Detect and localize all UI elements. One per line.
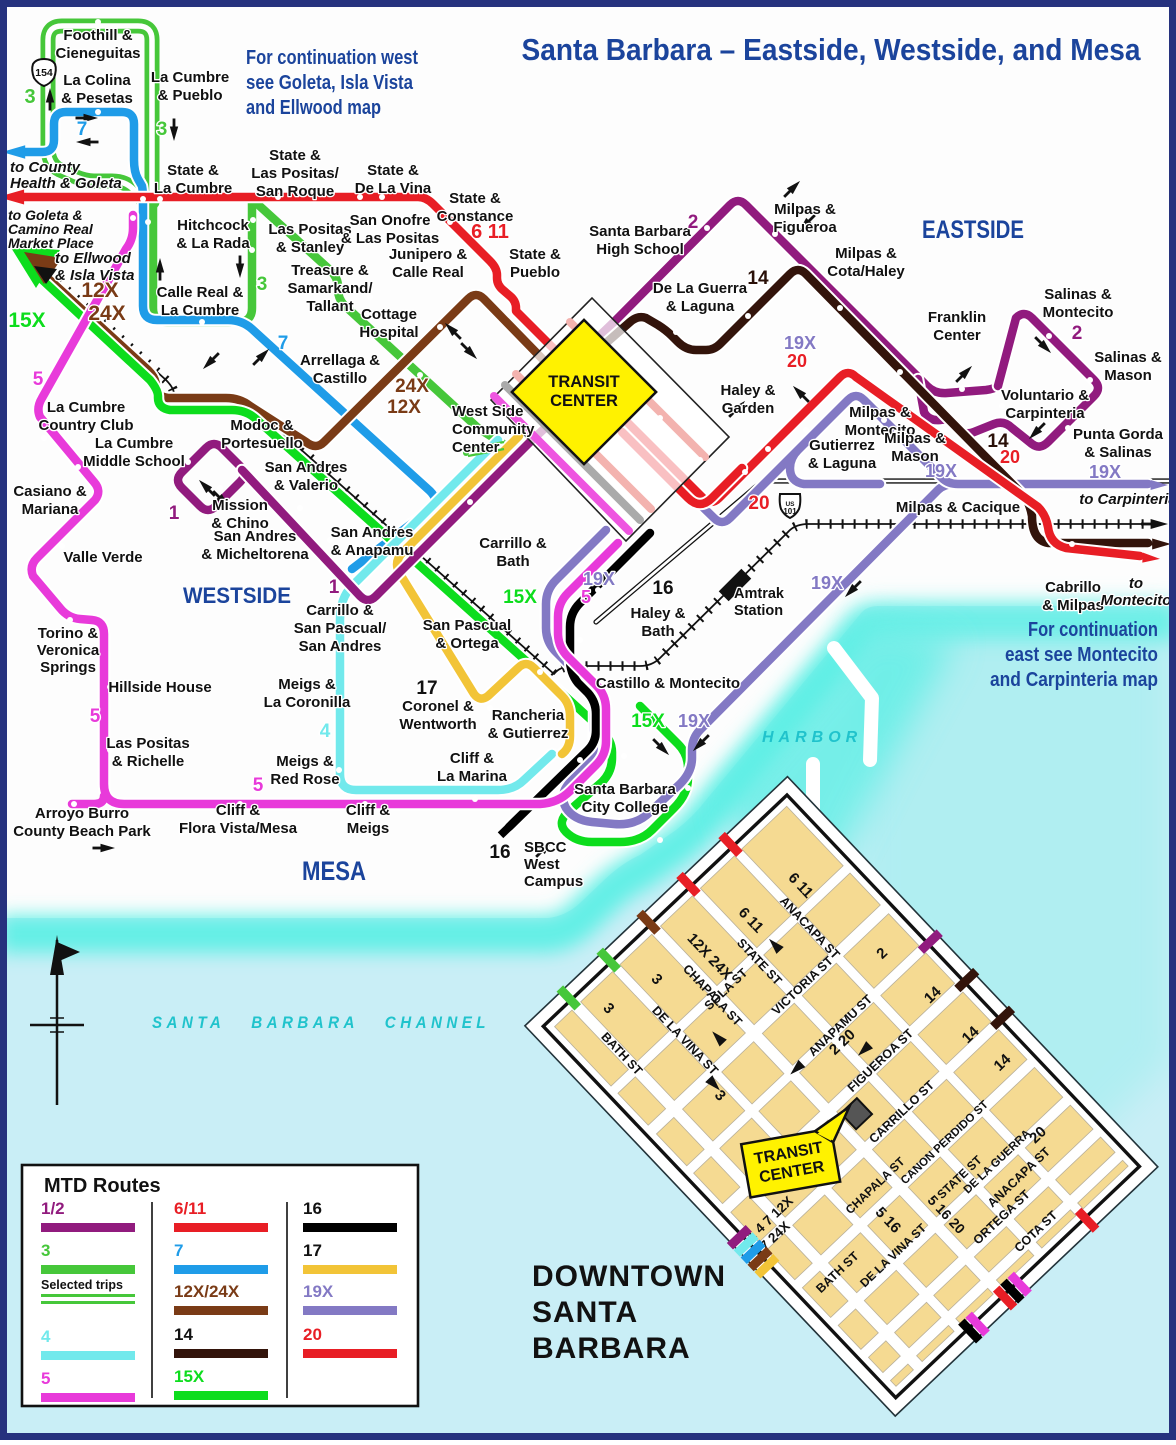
svg-text:Milpas & Cacique: Milpas & Cacique (896, 499, 1020, 516)
svg-text:La Coronilla: La Coronilla (264, 694, 351, 711)
svg-text:Milpas &: Milpas & (774, 201, 836, 218)
svg-text:and Ellwood map: and Ellwood map (246, 97, 381, 119)
svg-text:Foothill &: Foothill & (63, 27, 132, 44)
svg-text:Cliff &: Cliff & (450, 750, 494, 767)
svg-text:Hillside House: Hillside House (108, 679, 211, 696)
svg-text:Community: Community (452, 421, 535, 438)
svg-text:Selected trips: Selected trips (41, 1278, 123, 1292)
svg-text:De La Guerra: De La Guerra (653, 280, 748, 297)
svg-text:SANTA BARBARA CHANNEL: SANTA BARBARA CHANNEL (152, 1013, 490, 1032)
svg-text:to County: to County (10, 159, 81, 176)
svg-text:15X: 15X (174, 1367, 205, 1386)
svg-text:Flora Vista/Mesa: Flora Vista/Mesa (179, 820, 298, 837)
svg-text:La Cumbre: La Cumbre (47, 399, 125, 416)
svg-text:3: 3 (157, 119, 168, 140)
svg-text:La Cumbre: La Cumbre (151, 69, 229, 86)
svg-text:BARBARA: BARBARA (532, 1332, 691, 1365)
svg-text:San Pascual/: San Pascual/ (294, 620, 387, 637)
svg-text:Valle Verde: Valle Verde (63, 549, 142, 566)
svg-text:Montecito: Montecito (1101, 592, 1172, 609)
svg-text:to Carpinteria: to Carpinteria (1079, 491, 1176, 508)
svg-text:SANTA: SANTA (532, 1296, 638, 1329)
svg-text:2: 2 (688, 212, 699, 233)
svg-text:Santa Barbara – Eastside, West: Santa Barbara – Eastside, Westside, and … (522, 32, 1142, 67)
svg-text:Mason: Mason (1104, 367, 1152, 384)
svg-text:MESA: MESA (302, 856, 366, 886)
svg-text:San Roque: San Roque (256, 183, 334, 200)
svg-text:Junipero &: Junipero & (389, 246, 468, 263)
svg-text:24X: 24X (395, 376, 429, 397)
svg-text:San Andres: San Andres (331, 524, 414, 541)
svg-text:Tallant: Tallant (306, 298, 353, 315)
svg-text:Castillo: Castillo (313, 370, 367, 387)
svg-text:Hitchcock: Hitchcock (177, 217, 249, 234)
svg-text:5: 5 (90, 706, 101, 727)
svg-text:Pueblo: Pueblo (510, 264, 560, 281)
svg-text:15X: 15X (503, 587, 537, 608)
svg-text:Rancheria: Rancheria (492, 707, 565, 724)
svg-text:Castillo & Montecito: Castillo & Montecito (596, 675, 740, 692)
svg-text:DOWNTOWN: DOWNTOWN (532, 1260, 726, 1293)
svg-text:12X: 12X (387, 397, 421, 418)
svg-text:Center: Center (452, 439, 500, 456)
svg-text:Punta Gorda: Punta Gorda (1073, 426, 1164, 443)
svg-text:Milpas &: Milpas & (884, 430, 946, 447)
svg-text:7: 7 (77, 119, 88, 140)
svg-text:Red Rose: Red Rose (270, 771, 339, 788)
svg-text:20: 20 (1000, 447, 1020, 467)
svg-text:San Andres: San Andres (265, 459, 348, 476)
svg-text:19X: 19X (303, 1282, 334, 1301)
svg-text:Wentworth: Wentworth (399, 716, 476, 733)
svg-text:Santa Barbara: Santa Barbara (574, 781, 676, 798)
svg-text:Las Positas/: Las Positas/ (251, 165, 339, 182)
svg-text:San Onofre: San Onofre (350, 212, 431, 229)
svg-text:& Stanley: & Stanley (276, 239, 345, 256)
svg-text:1: 1 (329, 577, 340, 598)
svg-text:Haley &: Haley & (630, 605, 685, 622)
svg-text:Amtrak: Amtrak (734, 586, 785, 602)
svg-text:Coronel &: Coronel & (402, 698, 474, 715)
svg-text:Mission: Mission (212, 497, 268, 514)
svg-text:Modoc &: Modoc & (230, 417, 293, 434)
svg-text:De La Vina: De La Vina (355, 180, 432, 197)
svg-text:19X: 19X (678, 711, 710, 731)
svg-text:17: 17 (303, 1241, 322, 1260)
svg-text:TRANSIT: TRANSIT (548, 373, 620, 391)
svg-text:Cliff &: Cliff & (346, 802, 390, 819)
svg-text:Calle Real: Calle Real (392, 264, 464, 281)
svg-text:State &: State & (269, 147, 321, 164)
svg-text:12X/24X: 12X/24X (174, 1282, 240, 1301)
svg-text:MTD Routes: MTD Routes (44, 1175, 161, 1197)
svg-text:Carpinteria: Carpinteria (1005, 405, 1085, 422)
svg-text:San Andres: San Andres (214, 528, 297, 545)
svg-text:20: 20 (748, 493, 769, 514)
svg-text:& Valerio: & Valerio (274, 477, 338, 494)
svg-text:Las Positas: Las Positas (106, 735, 189, 752)
svg-text:3: 3 (24, 86, 35, 108)
svg-text:La Colina: La Colina (63, 72, 131, 89)
svg-text:19X: 19X (784, 333, 816, 353)
svg-text:Campus: Campus (524, 873, 583, 890)
svg-text:County Beach Park: County Beach Park (13, 823, 151, 840)
svg-text:5: 5 (33, 369, 44, 390)
svg-text:Las Positas: Las Positas (268, 221, 351, 238)
svg-text:15X: 15X (631, 711, 665, 732)
svg-text:Haley &: Haley & (720, 382, 775, 399)
svg-text:San Pascual: San Pascual (423, 617, 511, 634)
svg-text:Milpas &: Milpas & (835, 245, 897, 262)
svg-text:20: 20 (787, 351, 807, 371)
svg-text:Country Club: Country Club (39, 417, 134, 434)
svg-text:and Carpinteria map: and Carpinteria map (990, 669, 1158, 691)
svg-text:3: 3 (41, 1241, 50, 1260)
svg-text:Meigs: Meigs (347, 820, 390, 837)
svg-text:20: 20 (303, 1325, 322, 1344)
svg-text:15X: 15X (8, 309, 45, 332)
svg-text:Bath: Bath (641, 623, 674, 640)
svg-text:101: 101 (783, 507, 797, 516)
svg-text:Franklin: Franklin (928, 309, 986, 326)
svg-text:Santa Barbara: Santa Barbara (589, 223, 691, 240)
svg-text:HARBOR: HARBOR (762, 729, 862, 746)
svg-text:Meigs &: Meigs & (276, 753, 334, 770)
svg-text:19X: 19X (1089, 462, 1121, 482)
svg-text:La Marina: La Marina (437, 768, 508, 785)
svg-text:State &: State & (449, 190, 501, 207)
svg-text:Milpas &: Milpas & (849, 404, 911, 421)
svg-text:San Andres: San Andres (299, 638, 382, 655)
svg-text:5: 5 (581, 587, 591, 607)
svg-text:14: 14 (174, 1325, 193, 1344)
svg-text:6/11: 6/11 (174, 1199, 206, 1218)
svg-text:Bath: Bath (496, 553, 529, 570)
svg-text:City College: City College (582, 799, 669, 816)
svg-text:& Richelle: & Richelle (112, 753, 185, 770)
svg-text:Meigs &: Meigs & (278, 676, 336, 693)
svg-text:1/2: 1/2 (41, 1199, 65, 1218)
svg-text:& La Rada: & La Rada (176, 235, 250, 252)
svg-text:SBCC: SBCC (524, 839, 567, 856)
svg-text:La Cumbre: La Cumbre (161, 302, 239, 319)
svg-text:Calle Real &: Calle Real & (157, 284, 244, 301)
svg-text:Gutierrez: Gutierrez (809, 437, 875, 454)
svg-text:6 11: 6 11 (471, 221, 509, 243)
svg-text:& Laguna: & Laguna (808, 455, 877, 472)
svg-text:High School: High School (596, 241, 684, 258)
svg-text:Cottage: Cottage (361, 306, 417, 323)
svg-text:& Micheltorena: & Micheltorena (201, 546, 309, 563)
svg-text:Garden: Garden (722, 400, 775, 417)
svg-text:Portesuello: Portesuello (221, 435, 303, 452)
svg-text:& Gutierrez: & Gutierrez (488, 725, 569, 742)
svg-text:1: 1 (169, 503, 180, 524)
svg-text:West: West (524, 856, 560, 873)
svg-text:16: 16 (303, 1199, 322, 1218)
svg-text:2: 2 (1072, 323, 1083, 344)
svg-text:5: 5 (253, 775, 264, 796)
svg-text:& Ortega: & Ortega (435, 635, 499, 652)
svg-text:Mariana: Mariana (22, 501, 79, 518)
svg-text:14: 14 (747, 268, 769, 289)
svg-text:16: 16 (652, 578, 673, 599)
svg-text:Figueroa: Figueroa (773, 219, 837, 236)
svg-text:Arroyo Burro: Arroyo Burro (35, 805, 129, 822)
svg-text:State &: State & (509, 246, 561, 263)
svg-text:Center: Center (933, 327, 981, 344)
svg-text:12X: 12X (81, 279, 118, 302)
svg-text:WESTSIDE: WESTSIDE (183, 583, 291, 608)
svg-text:Hospital: Hospital (359, 324, 418, 341)
svg-text:West Side: West Side (452, 403, 523, 420)
svg-text:State &: State & (367, 162, 419, 179)
svg-text:Health & Goleta: Health & Goleta (10, 175, 122, 192)
svg-text:& Pesetas: & Pesetas (61, 90, 133, 107)
svg-text:Arrellaga &: Arrellaga & (300, 352, 380, 369)
svg-text:4: 4 (320, 721, 331, 742)
svg-text:Salinas &: Salinas & (1094, 349, 1162, 366)
svg-text:7: 7 (278, 333, 289, 354)
svg-text:17: 17 (416, 678, 437, 699)
svg-text:Voluntario &: Voluntario & (1001, 387, 1089, 404)
svg-text:Torino &: Torino & (38, 625, 99, 642)
svg-text:& Milpas: & Milpas (1042, 597, 1104, 614)
svg-text:Salinas &: Salinas & (1044, 286, 1112, 303)
svg-text:to: to (1129, 575, 1143, 592)
svg-text:Treasure &: Treasure & (291, 262, 369, 279)
svg-text:24X: 24X (88, 302, 125, 325)
svg-text:see Goleta, Isla Vista: see Goleta, Isla Vista (246, 72, 414, 94)
svg-text:Montecito: Montecito (1043, 304, 1114, 321)
svg-text:16: 16 (489, 842, 510, 863)
svg-text:For continuation west: For continuation west (246, 47, 418, 69)
svg-text:7: 7 (174, 1241, 183, 1260)
svg-text:154: 154 (35, 67, 53, 79)
svg-text:La Cumbre: La Cumbre (154, 180, 232, 197)
svg-text:19X: 19X (925, 461, 957, 481)
svg-text:Middle School: Middle School (83, 453, 185, 470)
svg-text:Casiano &: Casiano & (13, 483, 87, 500)
svg-text:State &: State & (167, 162, 219, 179)
svg-text:& Las Positas: & Las Positas (341, 230, 439, 247)
svg-text:3: 3 (257, 274, 268, 295)
svg-text:CENTER: CENTER (550, 392, 618, 410)
svg-text:Station: Station (734, 603, 783, 619)
svg-text:Veronica: Veronica (37, 642, 100, 659)
svg-text:east see Montecito: east see Montecito (1005, 644, 1158, 666)
svg-text:Carrillo &: Carrillo & (306, 602, 374, 619)
svg-text:Cota/Haley: Cota/Haley (827, 263, 905, 280)
svg-text:Cieneguitas: Cieneguitas (55, 45, 140, 62)
svg-text:& Anapamu: & Anapamu (331, 542, 414, 559)
svg-text:Cabrillo: Cabrillo (1045, 579, 1101, 596)
svg-text:& Pueblo: & Pueblo (157, 87, 222, 104)
svg-text:Cliff &: Cliff & (216, 802, 260, 819)
svg-text:EASTSIDE: EASTSIDE (922, 216, 1024, 244)
svg-text:19X: 19X (811, 573, 843, 593)
svg-text:5: 5 (41, 1369, 50, 1388)
svg-text:Carrillo &: Carrillo & (479, 535, 547, 552)
svg-text:to Ellwood: to Ellwood (55, 250, 132, 267)
svg-text:Samarkand/: Samarkand/ (287, 280, 373, 297)
svg-text:& Salinas: & Salinas (1084, 444, 1152, 461)
svg-text:Market Place: Market Place (8, 235, 94, 251)
svg-text:Springs: Springs (40, 659, 96, 676)
svg-text:& Laguna: & Laguna (666, 298, 735, 315)
svg-text:4: 4 (41, 1327, 51, 1346)
svg-text:La Cumbre: La Cumbre (95, 435, 173, 452)
svg-text:For continuation: For continuation (1028, 619, 1158, 641)
svg-text:19X: 19X (583, 569, 615, 589)
